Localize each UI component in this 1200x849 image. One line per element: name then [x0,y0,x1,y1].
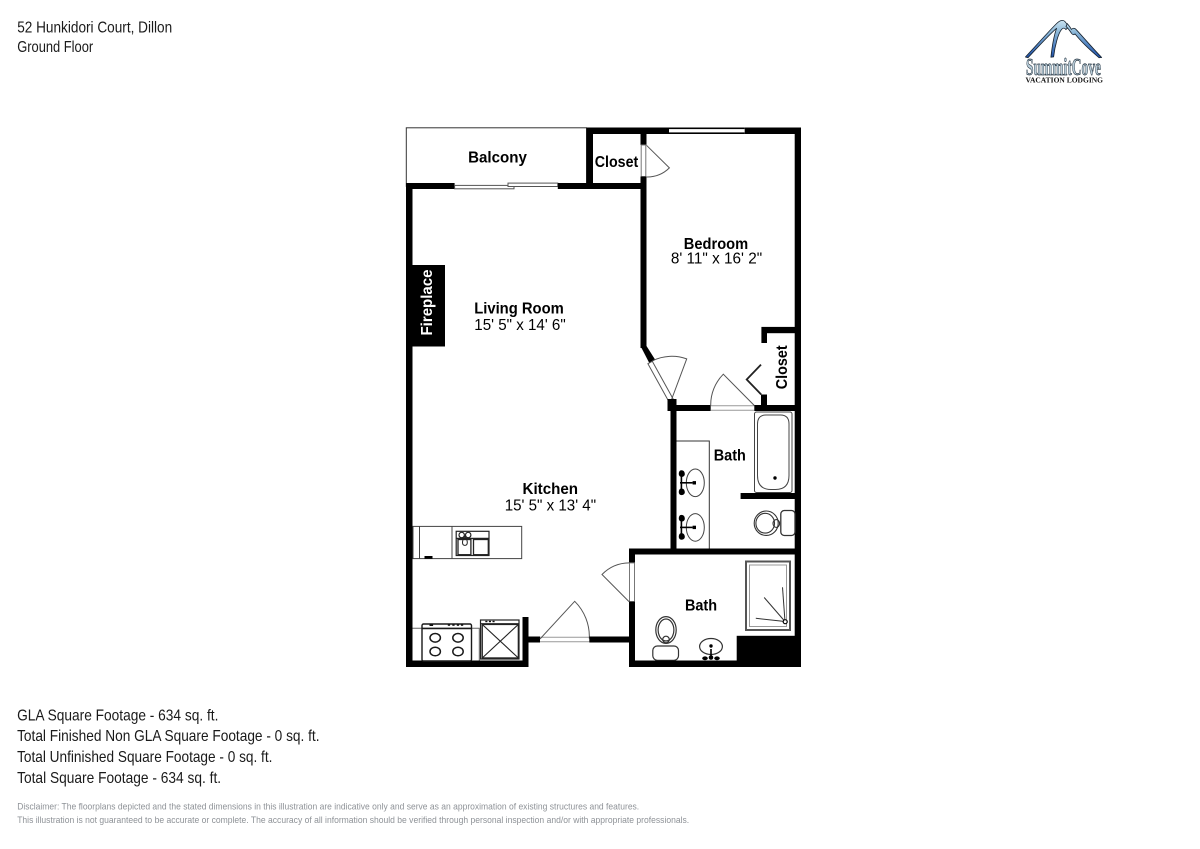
svg-text:Closet: Closet [595,154,639,171]
svg-text:Living Room: Living Room [474,301,564,318]
svg-text:15' 5" x 13' 4": 15' 5" x 13' 4" [505,498,596,515]
svg-text:Ground Floor: Ground Floor [17,39,94,56]
svg-text:15' 5" x 14' 6": 15' 5" x 14' 6" [474,317,565,334]
svg-text:This illustration is not guara: This illustration is not guaranteed to b… [17,815,689,825]
svg-text:Kitchen: Kitchen [523,481,579,498]
svg-text:Bath: Bath [685,598,717,615]
svg-text:Total Square Footage - 634 sq.: Total Square Footage - 634 sq. ft. [17,770,221,787]
svg-text:Total Unfinished Square Footag: Total Unfinished Square Footage - 0 sq. … [17,749,272,766]
svg-text:52 Hunkidori Court, Dillon: 52 Hunkidori Court, Dillon [17,20,172,37]
svg-text:GLA Square Footage - 634 sq. f: GLA Square Footage - 634 sq. ft. [17,707,218,724]
svg-text:Bath: Bath [714,447,746,464]
svg-text:Fireplace: Fireplace [419,269,436,335]
svg-text:Balcony: Balcony [468,149,527,166]
svg-text:Closet: Closet [774,345,791,390]
svg-text:8' 11" x 16' 2": 8' 11" x 16' 2" [671,251,762,268]
svg-text:Total Finished Non GLA Square: Total Finished Non GLA Square Footage - … [17,728,319,745]
svg-text:Disclaimer: The floorplans dep: Disclaimer: The floorplans depicted and … [17,802,639,812]
svg-text:VACATION LODGING: VACATION LODGING [1026,76,1104,84]
